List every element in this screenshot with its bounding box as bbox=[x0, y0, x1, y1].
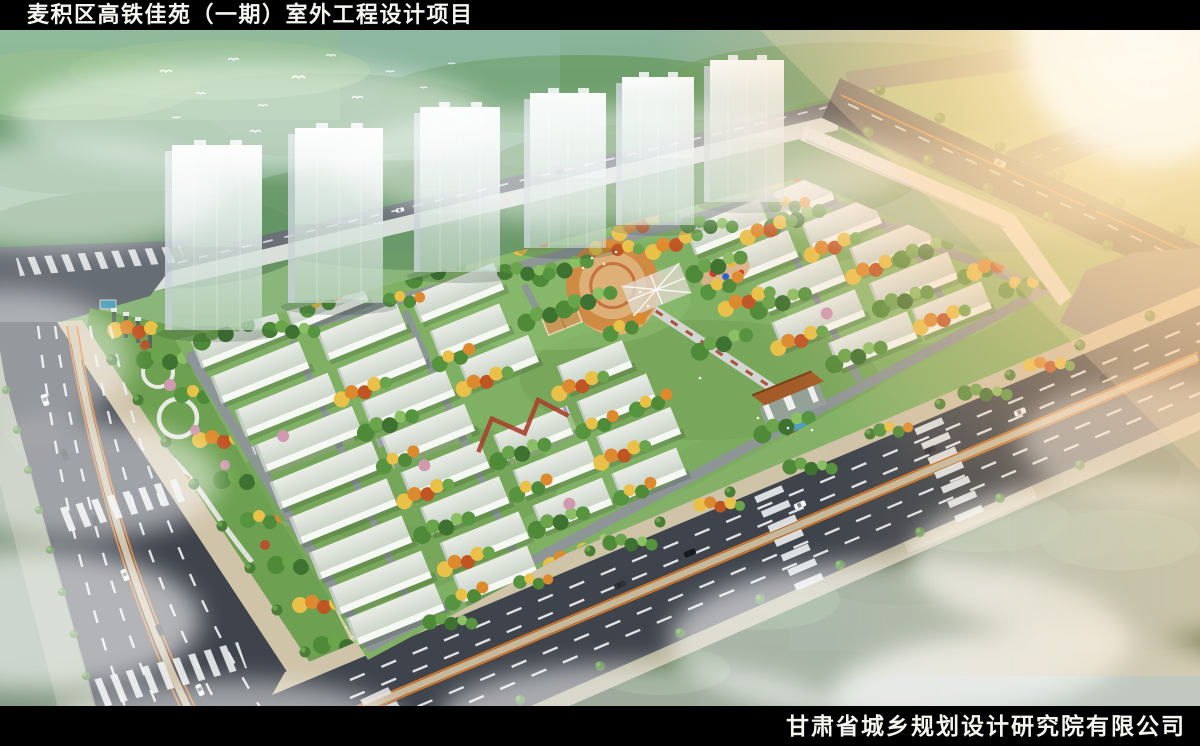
project-title: 麦积区高铁佳苑（一期）室外工程设计项目 bbox=[0, 0, 1200, 31]
pond bbox=[100, 300, 116, 309]
title-bar: 麦积区高铁佳苑（一期）室外工程设计项目 bbox=[0, 0, 1200, 30]
aerial-rendering bbox=[0, 30, 1200, 706]
project-poster: 麦积区高铁佳苑（一期）室外工程设计项目 bbox=[0, 0, 1200, 746]
credit-bar: 甘肃省城乡规划设计研究院有限公司 bbox=[0, 706, 1200, 746]
company-name: 甘肃省城乡规划设计研究院有限公司 bbox=[0, 706, 1200, 746]
